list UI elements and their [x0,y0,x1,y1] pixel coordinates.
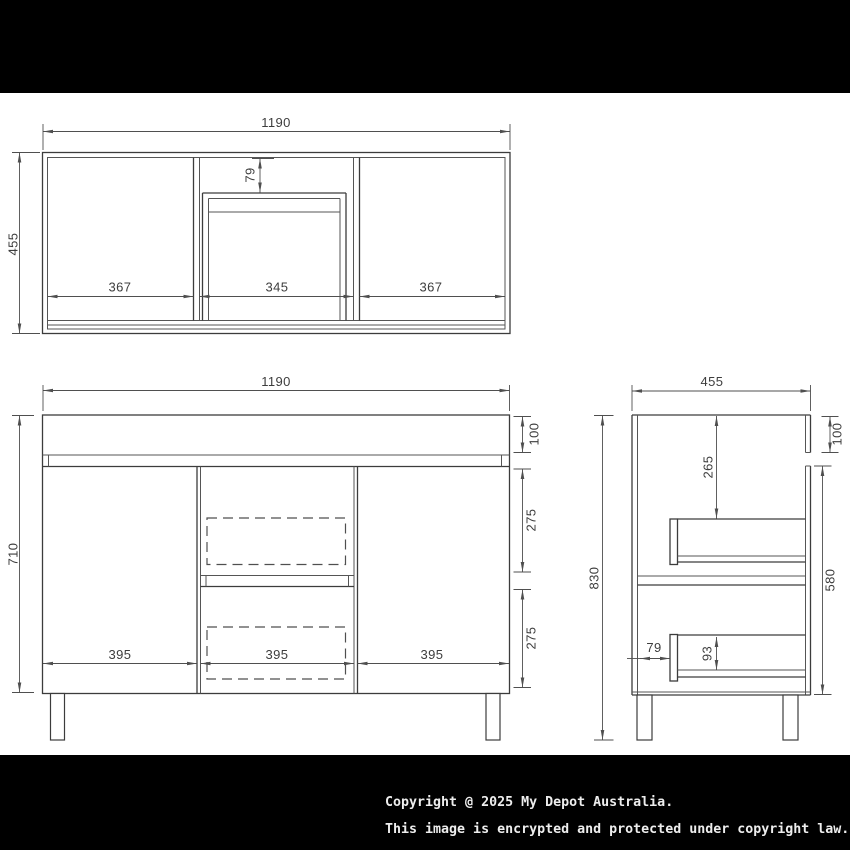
dim-side-drawer-back-gap: 79 [646,640,661,655]
front-right-leg [486,694,500,741]
dim-side-benchtop: 100 [830,423,845,446]
copyright-line-2: This image is encrypted and protected un… [385,821,849,837]
top-black-band [0,0,850,93]
page: 1190 455 367 345 367 79 [0,0,850,850]
dim-side-total-height: 830 [587,567,602,590]
dim-top-drawer-offset: 79 [243,167,258,182]
dim-top-section-middle: 345 [266,280,289,295]
copyright-line-1: Copyright @ 2025 My Depot Australia. [385,794,673,810]
dim-front-section-middle: 395 [266,647,289,662]
dim-top-width: 1190 [261,115,291,130]
dim-top-section-left: 367 [109,280,132,295]
front-left-leg [51,694,65,741]
side-left-leg [637,695,652,740]
dim-front-section-right: 395 [421,647,444,662]
dim-side-depth: 455 [701,374,724,389]
dim-side-drawer-side-height: 93 [700,646,715,661]
dim-top-section-right: 367 [420,280,443,295]
dim-front-width: 1190 [261,374,291,389]
dim-side-carcass-height: 580 [823,569,838,592]
dim-front-body-height: 710 [6,543,21,566]
dim-front-benchtop: 100 [527,423,542,446]
technical-drawing-canvas: 1190 455 367 345 367 79 [0,0,850,850]
dim-side-drawer-top-offset: 265 [701,456,716,479]
dim-front-lower-drawer: 275 [524,627,539,650]
side-right-leg [783,695,798,740]
dim-front-section-left: 395 [109,647,132,662]
dim-front-upper-drawer: 275 [524,509,539,532]
dim-top-depth: 455 [6,233,21,256]
